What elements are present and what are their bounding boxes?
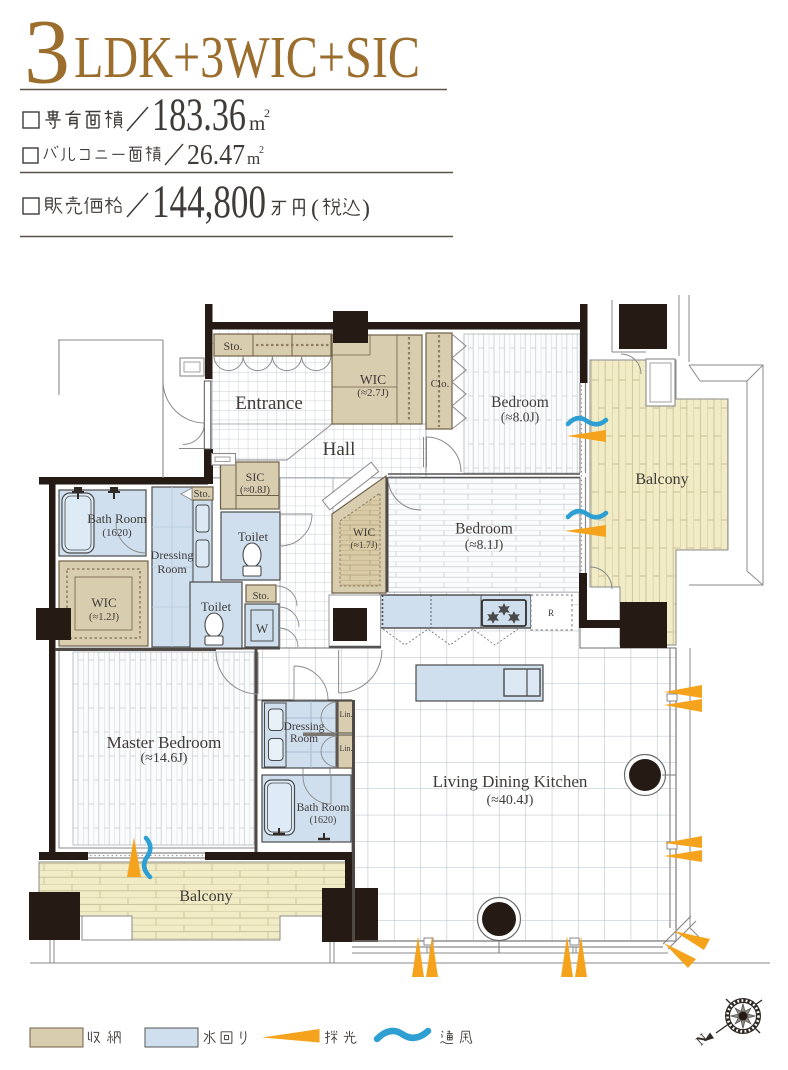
svg-text:Master Bedroom: Master Bedroom	[107, 733, 222, 752]
svg-text:Balcony: Balcony	[179, 888, 232, 905]
svg-text:(≈1.7J): (≈1.7J)	[350, 540, 377, 551]
svg-text:(≈8.0J): (≈8.0J)	[501, 410, 540, 425]
svg-text:WIC: WIC	[353, 527, 376, 539]
svg-text:Room: Room	[290, 733, 318, 745]
svg-text:(: (	[311, 196, 319, 222]
svg-text:Sto.: Sto.	[194, 489, 211, 500]
svg-text:Sto.: Sto.	[223, 339, 242, 353]
svg-text:Dressing: Dressing	[151, 548, 194, 562]
svg-text:LDK+3WIC+SIC: LDK+3WIC+SIC	[74, 24, 420, 90]
svg-text:Hall: Hall	[323, 439, 356, 460]
svg-text:R: R	[548, 608, 554, 618]
svg-text:144,800: 144,800	[152, 176, 266, 228]
svg-text:26.47: 26.47	[187, 140, 245, 171]
svg-text:(≈8.1J): (≈8.1J)	[465, 537, 504, 552]
svg-text:Dressing: Dressing	[284, 721, 325, 733]
svg-text:Bath Room: Bath Room	[297, 802, 350, 814]
svg-text:): )	[362, 196, 370, 222]
svg-text:183.36: 183.36	[152, 89, 246, 141]
svg-text:Bath Room: Bath Room	[87, 511, 147, 526]
svg-text:m: m	[249, 111, 265, 135]
svg-text:WIC: WIC	[91, 595, 116, 610]
svg-text:(≈14.6J): (≈14.6J)	[141, 751, 188, 766]
svg-text:Room: Room	[157, 562, 187, 576]
svg-text:2: 2	[259, 145, 264, 156]
svg-text:3: 3	[24, 1, 70, 103]
svg-text:Lin.: Lin.	[339, 710, 352, 719]
svg-text:Clo.: Clo.	[431, 378, 450, 390]
svg-text:(≈2.7J): (≈2.7J)	[357, 387, 389, 399]
svg-text:Toilet: Toilet	[238, 529, 269, 544]
svg-text:Sto.: Sto.	[253, 591, 270, 602]
svg-text:Living Dining Kitchen: Living Dining Kitchen	[433, 772, 588, 791]
svg-text:Lin.: Lin.	[339, 744, 352, 753]
svg-text:W: W	[256, 621, 269, 636]
svg-text:Balcony: Balcony	[635, 471, 688, 488]
svg-text:(1620): (1620)	[310, 815, 337, 826]
svg-text:WIC: WIC	[360, 372, 386, 387]
svg-text:SIC: SIC	[246, 470, 265, 484]
svg-text:(≈40.4J): (≈40.4J)	[487, 793, 534, 808]
svg-text:Entrance: Entrance	[235, 393, 303, 414]
svg-text:(≈1.2J): (≈1.2J)	[89, 612, 119, 623]
svg-text:Bedroom: Bedroom	[455, 521, 513, 538]
svg-text:(≈0.8J): (≈0.8J)	[240, 485, 270, 496]
svg-text:Bedroom: Bedroom	[491, 394, 549, 411]
svg-text:(1620): (1620)	[102, 527, 132, 539]
svg-text:N: N	[693, 1030, 710, 1048]
svg-text:Toilet: Toilet	[201, 599, 232, 614]
svg-text:2: 2	[264, 106, 270, 120]
